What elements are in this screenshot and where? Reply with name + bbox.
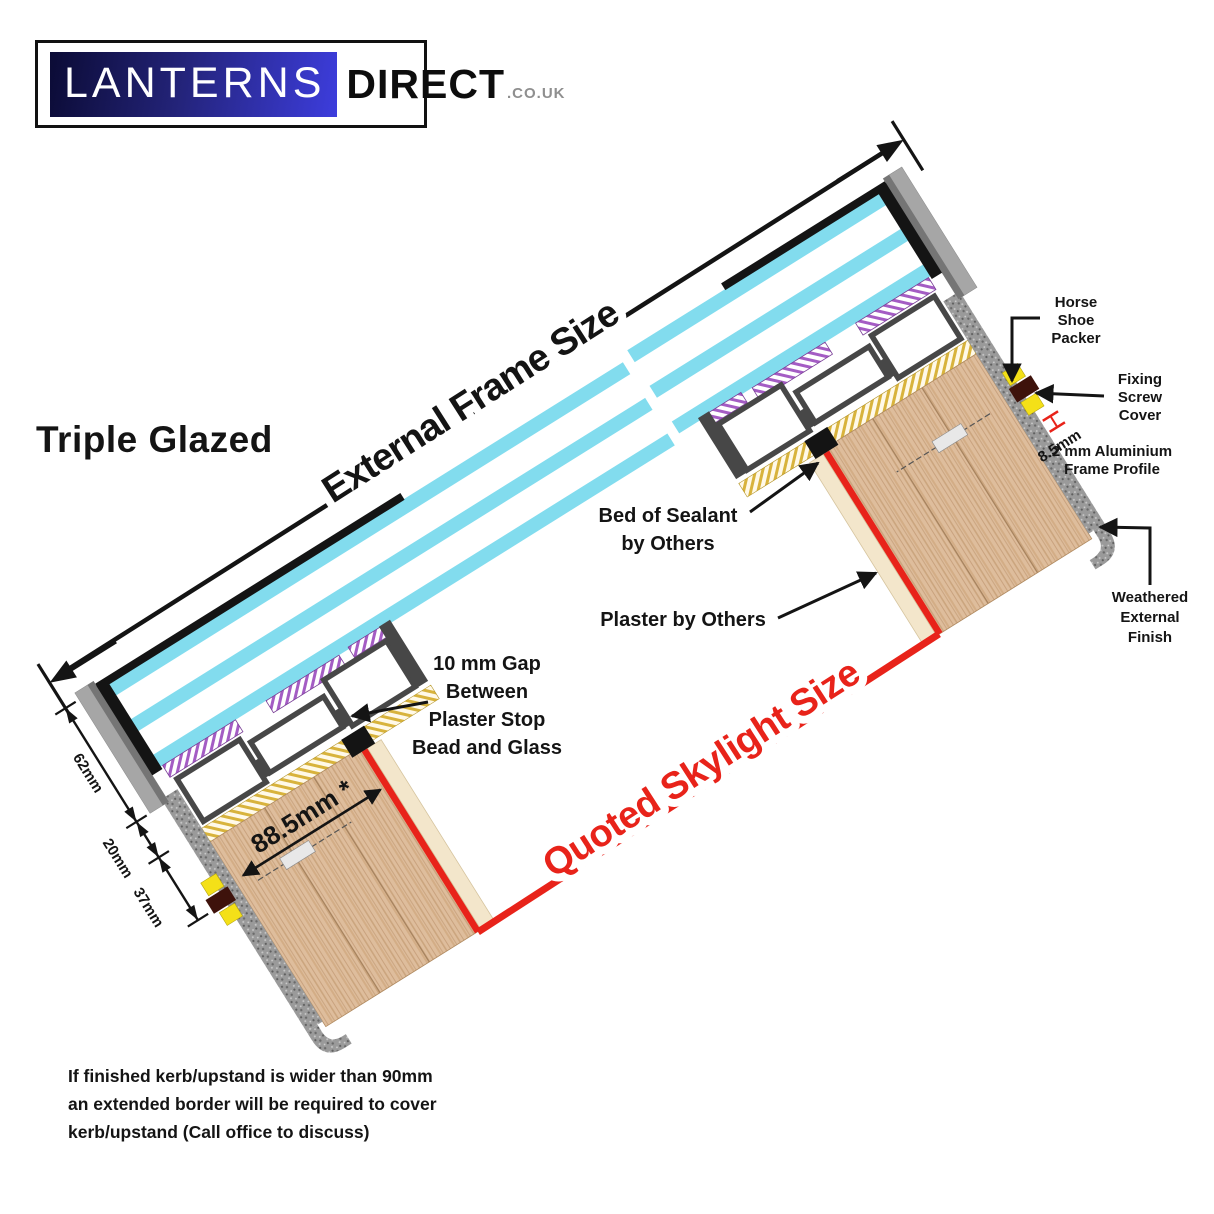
- callout-line: Between: [446, 681, 528, 703]
- reveal-height-label: 37mm: [130, 885, 167, 931]
- glass-pane-outer: [627, 181, 906, 362]
- skylight-section-diagram: 88.5mm * 62mm 20mm 37mm: [0, 0, 1214, 1214]
- callout-line: Shoe: [1058, 312, 1095, 329]
- fixing-screw-cover-callout: Fixing Screw Cover: [1118, 371, 1163, 424]
- callout-line: Packer: [1051, 330, 1100, 347]
- chain-tick: [188, 914, 208, 927]
- glazing-type-title: Triple Glazed: [36, 419, 273, 460]
- footnote-line: kerb/upstand (Call office to discuss): [68, 1122, 369, 1142]
- callout-line: External: [1120, 609, 1179, 626]
- fixing-screw-leader: [1036, 393, 1104, 396]
- callout-line: Fixing: [1118, 371, 1162, 388]
- diagram-canvas: LANTERNS DIRECT .CO.UK: [0, 0, 1214, 1214]
- callout-line: 2 mm Aluminium: [1052, 443, 1172, 460]
- frame-dim-arrowhead: [876, 131, 909, 162]
- callout-line: Screw: [1118, 389, 1163, 406]
- glass-pane-inner: [133, 433, 675, 779]
- plaster-by-others-callout: Plaster by Others: [600, 609, 766, 631]
- quoted-skylight-size-label: Quoted Skylight Size: [535, 652, 867, 887]
- weathered-finish-callout: Weathered External Finish: [1112, 589, 1188, 646]
- callout-line: Finish: [1128, 629, 1172, 646]
- plaster-leader: [778, 573, 876, 618]
- timber-kerb: [824, 354, 1092, 634]
- callout-line: by Others: [621, 533, 714, 555]
- callout-line: Horse: [1055, 294, 1098, 311]
- callout-line: 10 mm Gap: [433, 653, 541, 675]
- base-height-label: 20mm: [99, 836, 136, 882]
- bed-of-sealant-callout: Bed of Sealant by Others: [599, 505, 738, 555]
- footnote-line: an extended border will be required to c…: [68, 1094, 437, 1114]
- glass-top-gasket: [721, 175, 899, 290]
- plaster-gap-callout: 10 mm Gap Between Plaster Stop Bead and …: [412, 653, 562, 759]
- profile-wall-tick: [1050, 416, 1057, 427]
- glass-height-label: 62mm: [69, 750, 106, 796]
- callout-line: Bed of Sealant: [599, 505, 738, 527]
- callout-line: Frame Profile: [1064, 461, 1160, 478]
- aluminium-profile-callout: 2 mm Aluminium Frame Profile: [1052, 443, 1172, 478]
- callout-line: Cover: [1119, 407, 1162, 424]
- callout-line: Weathered: [1112, 589, 1188, 606]
- callout-line: Bead and Glass: [412, 737, 562, 759]
- kerb-width-footnote: If finished kerb/upstand is wider than 9…: [68, 1066, 437, 1142]
- footnote-line: If finished kerb/upstand is wider than 9…: [68, 1066, 433, 1086]
- horse-shoe-packer-callout: Horse Shoe Packer: [1051, 294, 1100, 347]
- callout-line: Plaster Stop: [429, 709, 546, 731]
